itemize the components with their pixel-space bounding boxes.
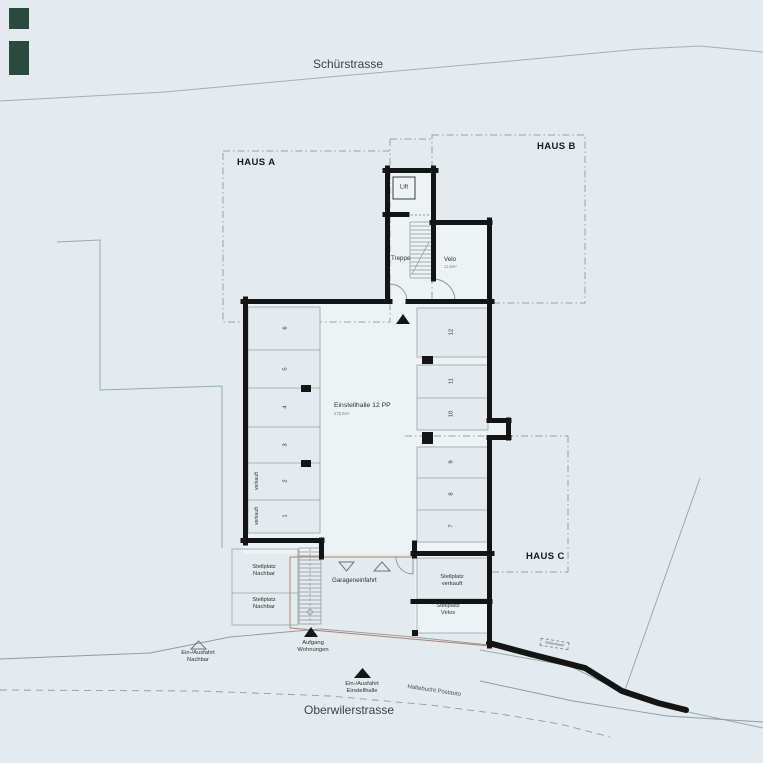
stall-number-12: 12	[449, 329, 456, 335]
site-plan: Schürstrasse Oberwilerstrasse Haltebucht…	[0, 0, 763, 763]
stairs-label: Treppe	[391, 255, 410, 262]
neighbor-stall-lower-label: Stellplatz Nachbar	[252, 597, 276, 611]
neighbor-stall-lower-line2: Nachbar	[252, 604, 276, 611]
sold-stall-line1: Stellplatz	[440, 574, 464, 581]
velo-area-label: 11.5m²	[444, 264, 457, 269]
stall-1-sold-note: verkauft	[254, 507, 260, 525]
stall-number-2: 2	[283, 479, 290, 482]
entrance-neighbor-line1: Ein-/Ausfahrt	[181, 650, 215, 657]
velo-label: Velo	[444, 256, 456, 263]
haus-b-label: HAUS B	[537, 141, 576, 152]
stall-number-1: 1	[283, 514, 290, 517]
entrance-hall-line1: Ein-/Ausfahrt	[345, 681, 379, 688]
stair-up-arrow-icon	[304, 627, 318, 637]
sold-stall-line2: verkauft	[440, 581, 464, 588]
entrance-hall-label: Ein-/Ausfahrt Einstellhalle	[345, 681, 379, 695]
entrance-hall-line2: Einstellhalle	[345, 688, 379, 695]
stall-2-sold-note: verkauft	[254, 472, 260, 490]
stall-number-8: 8	[449, 492, 456, 495]
garage-up-arrow-icon	[374, 562, 390, 571]
retaining-wall	[489, 643, 686, 710]
stall-number-9: 9	[449, 460, 456, 463]
street-label-bottom: Oberwilerstrasse	[304, 703, 394, 717]
stair-up-line1: Aufgang	[297, 640, 328, 647]
garage-name-label: Einstellhalle 12 PP	[334, 402, 391, 410]
street-label-top: Schürstrasse	[313, 57, 383, 71]
stall-number-7: 7	[449, 524, 456, 527]
garage-down-arrow-icon	[339, 562, 354, 571]
entrance-neighbor-label: Ein-/Ausfahrt Nachbar	[181, 650, 215, 664]
velo-stall-line2: Velos	[436, 610, 460, 617]
neighbor-stall-boxes	[232, 549, 298, 625]
sold-stall-label: Stellplatz verkauft	[440, 574, 464, 588]
stair-up-label: Aufgang Wohnungen	[297, 640, 328, 654]
stall-number-6: 6	[283, 326, 290, 329]
garage-entrance-label: Garageneinfahrt	[332, 577, 377, 584]
green-marker-2	[9, 41, 29, 75]
stall-number-5: 5	[283, 367, 290, 370]
stall-number-10: 10	[449, 411, 456, 417]
exterior-stair	[299, 548, 321, 624]
haus-c-label: HAUS C	[526, 551, 565, 562]
entrance-neighbor-line2: Nachbar	[181, 657, 215, 664]
stall-number-4: 4	[283, 405, 290, 408]
lift-label: Lift	[400, 184, 408, 191]
haus-ab-connector	[390, 139, 432, 151]
stall-number-3: 3	[283, 443, 290, 446]
hall-entry-arrow-icon	[354, 668, 371, 678]
velo-stall-label: Stellplatz Velos	[436, 603, 460, 617]
green-marker-1	[9, 8, 29, 29]
haus-a-label: HAUS A	[237, 157, 275, 168]
velo-stall-line1: Stellplatz	[436, 603, 460, 610]
stall-number-11: 11	[449, 378, 456, 384]
neighbor-stall-upper-line2: Nachbar	[252, 571, 276, 578]
neighbor-stall-upper-line1: Stellplatz	[252, 564, 276, 571]
neighbor-stall-upper-label: Stellplatz Nachbar	[252, 564, 276, 578]
street-bottom-edge-2	[480, 681, 763, 722]
stair-up-line2: Wohnungen	[297, 647, 328, 654]
haus-a-outline	[223, 151, 390, 322]
plan-drawing	[0, 0, 763, 763]
neighbor-stall-lower-line1: Stellplatz	[252, 597, 276, 604]
garage-area-label: 279.5m²	[334, 411, 349, 416]
street-top-edge	[0, 46, 763, 101]
